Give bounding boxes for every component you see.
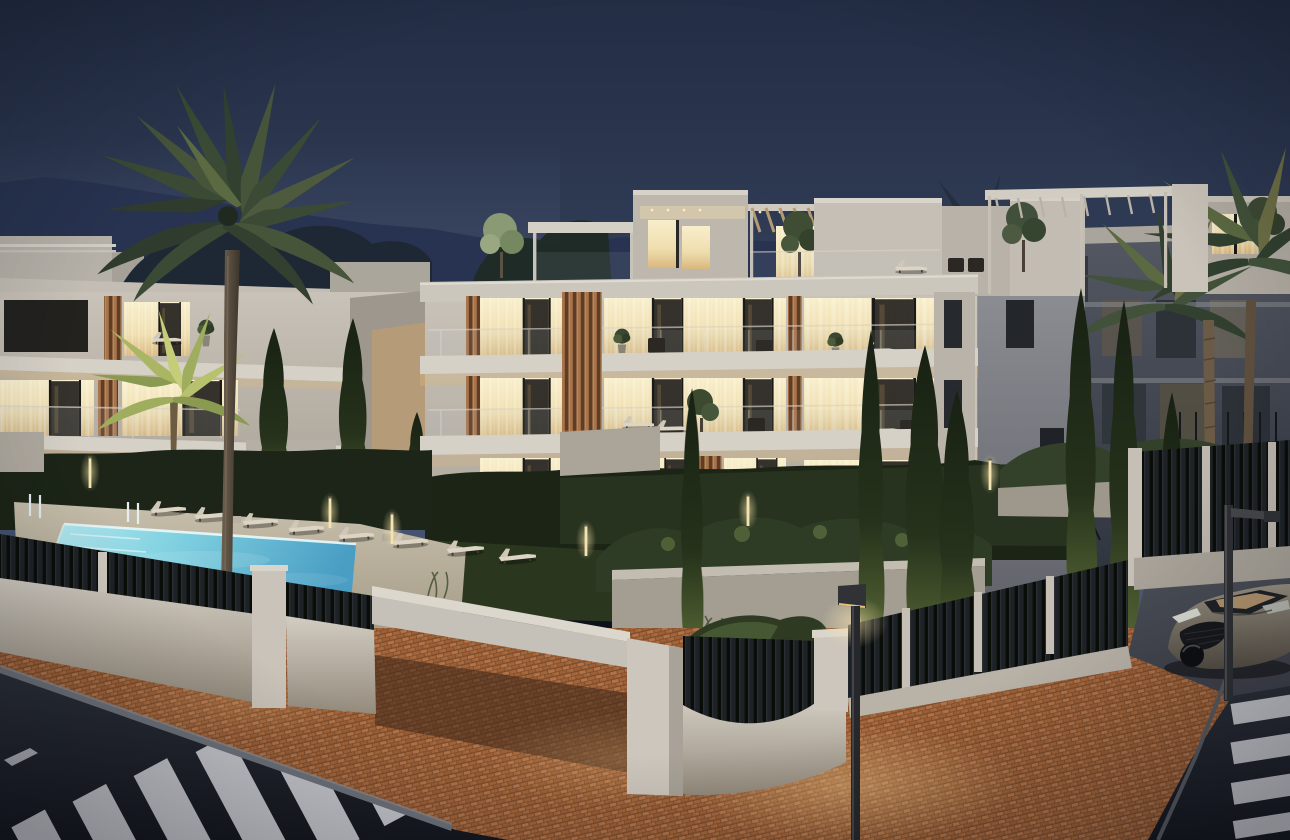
architectural-render xyxy=(0,0,1290,840)
rendered-scene xyxy=(0,0,1290,840)
vignette xyxy=(0,0,1290,840)
